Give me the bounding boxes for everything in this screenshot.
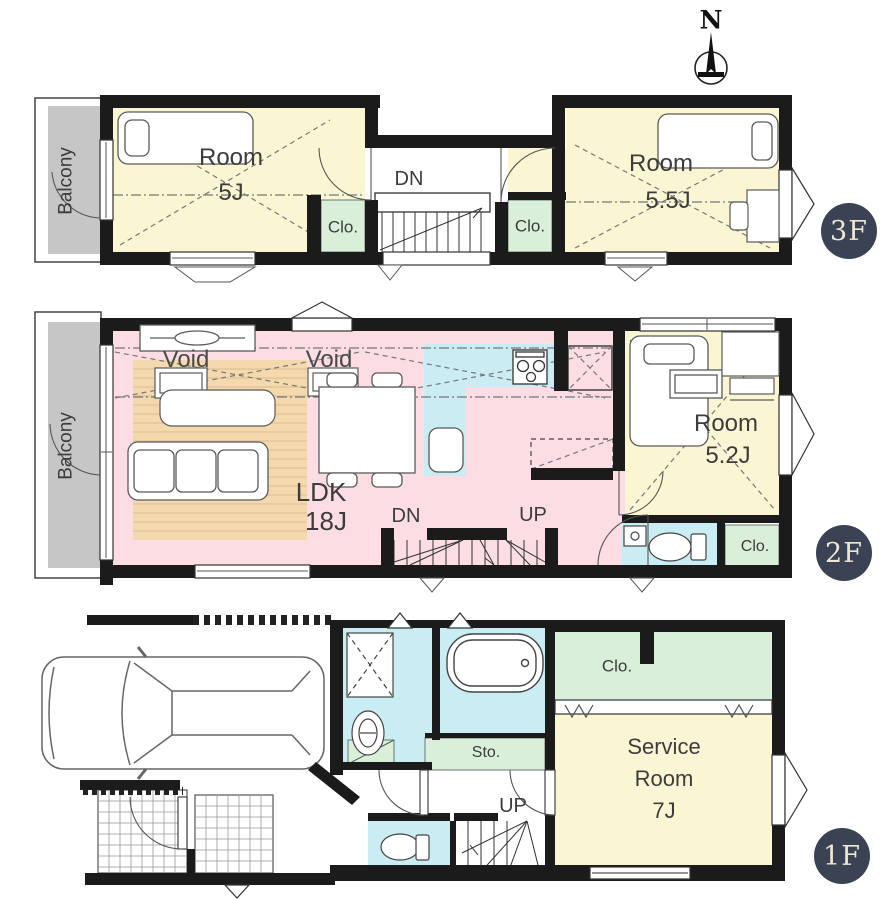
room-5-2j-name: Room: [694, 412, 758, 436]
ldk-name: LDK: [296, 479, 347, 505]
floor-plan-3f: [30, 90, 850, 285]
sofa-icon: [128, 442, 268, 500]
sink-icon: [429, 428, 463, 472]
stairs-down-3f-label: DN: [395, 169, 424, 189]
closet-3f-left-label: Clo.: [328, 219, 358, 236]
stairs-up-2f-label: UP: [519, 505, 547, 525]
room-5-2j-size: 5.2J: [705, 444, 750, 468]
ldk-size: 18J: [305, 508, 347, 534]
door-arcs-1f: [130, 770, 555, 849]
floor-plan-1f: [30, 605, 850, 900]
service-room-size: 7J: [652, 800, 675, 822]
toilet-icon-1f: [381, 834, 429, 860]
shower-icon: [347, 633, 393, 697]
desk-icon-2f: [722, 332, 779, 400]
north-arrow-icon: [680, 28, 742, 92]
washbasin-icon: [352, 711, 384, 755]
stairs-3f: [375, 193, 490, 252]
boundary-wall-1f: [87, 615, 193, 625]
stove-icon: [513, 350, 547, 384]
closet-1f-label: Clo.: [602, 658, 632, 675]
floor-plan-page: N 3F 2F 1F: [0, 0, 892, 900]
room-5j-name: Room: [199, 146, 263, 170]
balcony-2f-label: Balcony: [57, 412, 76, 480]
room-5-5j-name: Room: [629, 152, 693, 176]
closet-2f-label: Clo.: [741, 539, 769, 555]
stairs-down-2f-label: DN: [392, 506, 421, 526]
storage-label: Sto.: [472, 745, 500, 761]
closet-1f-area: [555, 632, 772, 700]
closet-3f-right-label: Clo.: [515, 218, 545, 235]
void-left-label: Void: [163, 348, 210, 372]
room-5-5j-size: 5.5J: [645, 189, 690, 213]
room-5j-size: 5J: [218, 181, 243, 205]
balcony-3f-label: Balcony: [57, 147, 76, 215]
stairs-up-1f-label: UP: [499, 796, 527, 816]
void-right-label: Void: [306, 348, 353, 372]
service-room-name-1: Service: [627, 736, 700, 758]
service-room-name-2: Room: [635, 768, 694, 790]
car-icon: [42, 647, 324, 779]
dining-table-icon: [319, 373, 415, 487]
bathtub-icon: [447, 634, 543, 692]
